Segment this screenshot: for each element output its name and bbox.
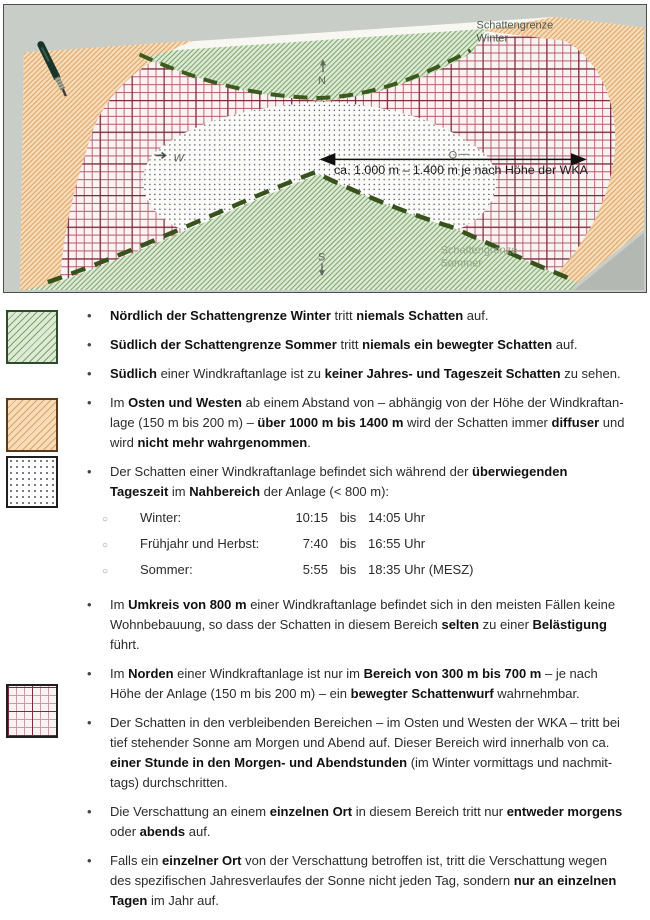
shadow-times-row-spring-autumn: ○ Frühjahr und Herbst: 7:40 bis 16:55 Uh… — [102, 534, 627, 560]
legend-red-grid-swatch — [6, 684, 58, 738]
time-separator: bis — [328, 534, 368, 554]
compass-north-label: N — [318, 75, 326, 87]
bullet-item-einzelner-ort-morgens-abends: Die Verschattung an einem einzelnen Ort … — [110, 802, 627, 842]
shadow-map-diagram: ca. 1.000 m – 1.400 m je nach Höhe der W… — [3, 4, 647, 293]
circle-bullet-icon: ○ — [102, 536, 140, 556]
marker-west-label: W — [173, 152, 185, 164]
bullet-item-south-summer: Südlich der Schattengrenze Sommer tritt … — [110, 335, 627, 355]
bullet-item-einzelne-tage: Falls ein einzelner Ort von der Verschat… — [110, 851, 627, 911]
shadow-map-svg: ca. 1.000 m – 1.400 m je nach Höhe der W… — [4, 5, 646, 292]
circle-bullet-icon: ○ — [102, 510, 140, 530]
bullet-text: Nördlich der Schattengrenze Winter tritt… — [110, 308, 488, 323]
legend-green-hatch-swatch — [6, 310, 58, 364]
time-to: 16:55 Uhr — [368, 534, 627, 554]
season-label: Frühjahr und Herbst: — [140, 534, 286, 554]
bullet-list: Nördlich der Schattengrenze Winter tritt… — [110, 306, 627, 920]
bullet-item-umkreis-800: Im Umkreis von 800 m einer Windkraftanla… — [110, 595, 627, 655]
legend-dotted-swatch — [6, 456, 58, 508]
legend-orange-hatch-swatch — [6, 398, 58, 452]
time-separator: bis — [328, 508, 368, 528]
bullet-item-north-winter: Nördlich der Schattengrenze Winter tritt… — [110, 306, 627, 326]
season-label: Sommer: — [140, 560, 286, 580]
bullet-item-norden-300-700: Im Norden einer Windkraftanlage ist nur … — [110, 664, 627, 704]
sommer-label-line1: Schattengrenze — [441, 244, 518, 256]
distance-arrow-label: ca. 1.000 m – 1.400 m je nach Höhe der W… — [334, 163, 589, 177]
bullet-text: Im Umkreis von 800 m einer Windkraftanla… — [110, 597, 615, 652]
shadow-times-row-summer: ○ Sommer: 5:55 bis 18:35 Uhr (MESZ) — [102, 560, 627, 586]
time-to: 18:35 Uhr (MESZ) — [368, 560, 627, 580]
bullet-text: Falls ein einzelner Ort von der Verschat… — [110, 853, 616, 908]
bullet-text: Im Norden einer Windkraftanlage ist nur … — [110, 666, 598, 701]
winter-label-line1: Schattengrenze — [477, 20, 554, 32]
bullet-item-nahbereich: Der Schatten einer Windkraftanlage befin… — [110, 462, 627, 586]
compass-south-label: S — [318, 251, 325, 263]
marker-east-label: O — [449, 149, 458, 161]
bullet-text: Die Verschattung an einem einzelnen Ort … — [110, 804, 622, 839]
time-to: 14:05 Uhr — [368, 508, 627, 528]
time-separator: bis — [328, 560, 368, 580]
time-from: 7:40 — [286, 534, 328, 554]
season-label: Winter: — [140, 508, 286, 528]
bullet-text: Südlich der Schattengrenze Sommer tritt … — [110, 337, 577, 352]
bullet-text: Der Schatten einer Windkraftanlage befin… — [110, 464, 567, 499]
sommer-label-line2: Sommer — [441, 257, 483, 269]
bullet-text: Der Schatten in den verbleibenden Bereic… — [110, 715, 620, 790]
bullet-item-south-never: Südlich einer Windkraftanlage ist zu kei… — [110, 364, 627, 384]
shadow-times-table: ○ Winter: 10:15 bis 14:05 Uhr ○ Frühjahr… — [102, 508, 627, 586]
circle-bullet-icon: ○ — [102, 562, 140, 582]
shadow-info-sheet: { "diagram": { "winter_boundary_label_li… — [0, 0, 650, 890]
bullet-text: Südlich einer Windkraftanlage ist zu kei… — [110, 366, 621, 381]
winter-label-line2: Winter — [477, 33, 509, 45]
bullet-text: Im Osten und Westen ab einem Abstand von… — [110, 395, 624, 450]
bullet-item-verbleibende-bereiche: Der Schatten in den verbleibenden Bereic… — [110, 713, 627, 793]
time-from: 5:55 — [286, 560, 328, 580]
shadow-times-row-winter: ○ Winter: 10:15 bis 14:05 Uhr — [102, 508, 627, 534]
bullet-item-east-west-diffuse: Im Osten und Westen ab einem Abstand von… — [110, 393, 627, 453]
time-from: 10:15 — [286, 508, 328, 528]
